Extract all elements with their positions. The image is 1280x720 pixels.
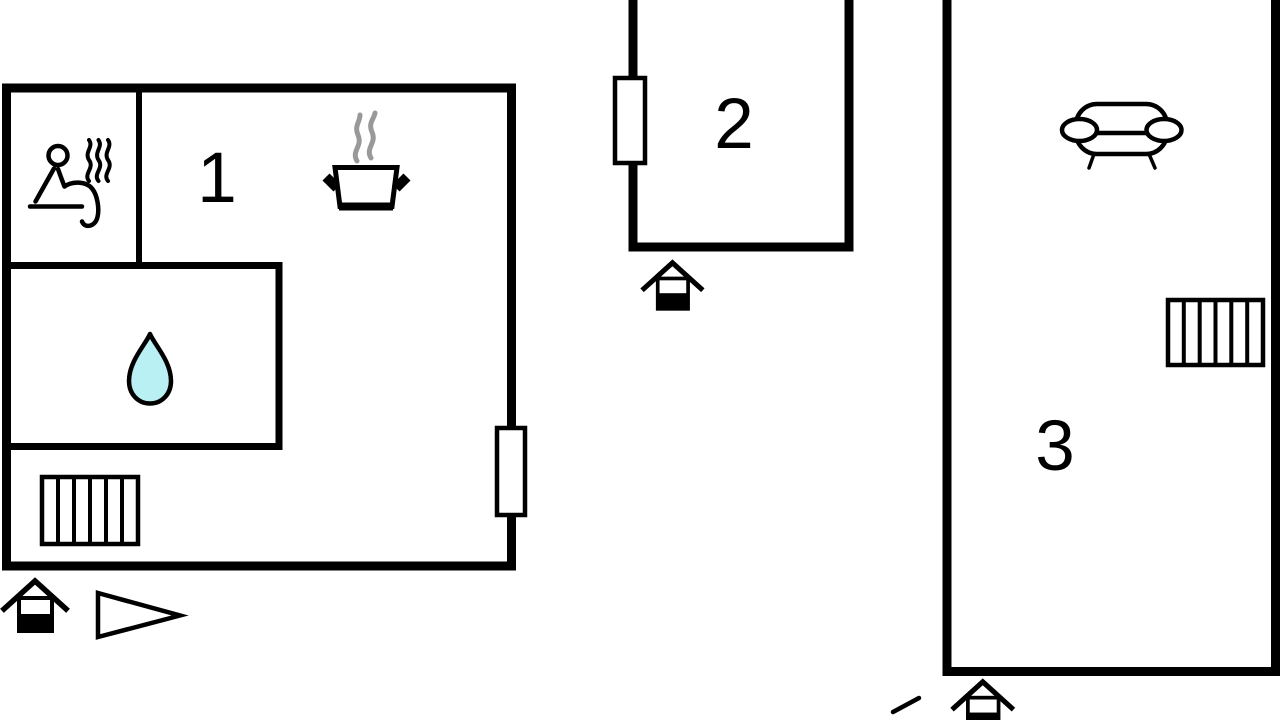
radiator-grill-unit-1 (42, 477, 138, 544)
sofa-icon (1062, 104, 1182, 168)
cropped-roof-line-icon (893, 698, 919, 712)
sofa-leg-left (1089, 154, 1094, 168)
pot-steam-lines (355, 113, 375, 161)
radiator-grill-unit-3 (1168, 300, 1263, 365)
sauna-person-arm (36, 169, 55, 202)
unit-3: 3 (893, 0, 1276, 720)
entrance-house-icon-unit-3 (954, 682, 1012, 720)
unit-1: 1 (2, 88, 525, 637)
sauna-steam-lines (87, 140, 109, 181)
unit-3-label: 3 (1035, 407, 1075, 486)
entrance-house-icon-unit-2 (644, 263, 701, 309)
sofa-leg-right (1149, 154, 1155, 168)
floor-plan-drawing: 1 (0, 0, 1280, 720)
unit-2: 2 (615, 0, 849, 309)
pot-body (335, 168, 397, 207)
sauna-person-head (49, 146, 68, 165)
window-unit-2 (615, 78, 645, 163)
unit-2-label: 2 (714, 85, 754, 164)
floor-plan-canvas: 1 (0, 0, 1280, 720)
sauna-person-icon (30, 140, 110, 226)
sauna-person-body (58, 169, 98, 226)
window-unit-1 (497, 428, 525, 515)
sofa-armrest-right (1147, 119, 1182, 141)
cooking-pot-icon (326, 113, 407, 207)
water-drop-icon (129, 334, 171, 404)
sofa-armrest-left (1062, 119, 1097, 141)
direction-triangle-icon (98, 593, 180, 637)
unit-1-label: 1 (197, 139, 237, 218)
entrance-house-icon-unit-1 (4, 581, 66, 631)
